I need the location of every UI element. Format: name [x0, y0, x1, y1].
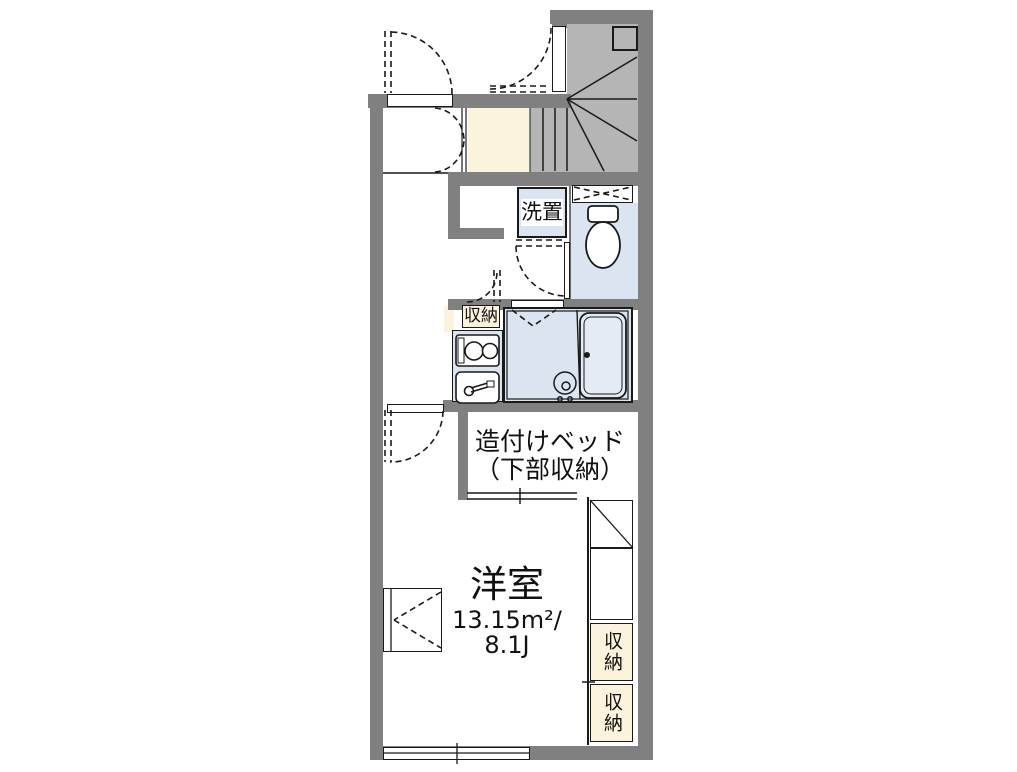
closet-upper-label: 収納	[590, 623, 633, 681]
toilet-door-leaf	[564, 242, 570, 299]
room-area-sqm-label: 13.15m²/	[437, 607, 577, 633]
wall-right	[638, 10, 653, 760]
entrance-door-leaf	[552, 26, 566, 92]
bottom-window-box	[383, 747, 530, 760]
porch-door-leaf	[387, 94, 453, 107]
room-door-leaf	[387, 404, 444, 413]
stair-lower-steps	[530, 108, 567, 172]
wall-below-entry	[448, 172, 653, 186]
room-door-arc	[390, 411, 443, 462]
closet-lower-label: 収納	[590, 684, 633, 742]
floorplan-canvas: 洗置 収納 造付けベッド （下部収納） 洋室 13.15m²/ 8.1J 収納 …	[0, 0, 1017, 772]
kitchen-unit-box	[452, 330, 503, 402]
refrigerator-space-box	[590, 500, 633, 548]
kitchen-storage-label: 収納	[462, 307, 500, 327]
bath-unit-box	[503, 307, 633, 403]
toilet-door-arc	[516, 246, 566, 296]
room-area-jo-label: 8.1J	[437, 632, 577, 658]
room-name-label: 洋室	[447, 565, 567, 606]
wall-left	[370, 95, 383, 760]
bifold-door-arc-top	[435, 108, 464, 140]
built-in-bed-label-line2: （下部収納）	[460, 456, 640, 484]
free-space-box	[590, 548, 633, 620]
toilet-floor	[570, 203, 638, 299]
genkan-step-frame	[462, 108, 466, 172]
entrance-door-arc	[490, 28, 551, 89]
washer-label: 洗置	[521, 199, 563, 226]
wall-washer-horizontal	[448, 228, 504, 239]
porch-door-arc	[390, 32, 452, 94]
washroom-door-arc	[467, 272, 497, 302]
built-in-bed-label-line1: 造付けベッド	[460, 428, 640, 456]
entrance-genkan-floor	[468, 108, 530, 172]
bifold-door-arc-bottom	[435, 140, 464, 172]
left-window-box	[383, 588, 442, 652]
stair-winder-area	[567, 24, 638, 172]
bed-slide-line	[467, 488, 577, 504]
toilet-window	[572, 185, 633, 203]
